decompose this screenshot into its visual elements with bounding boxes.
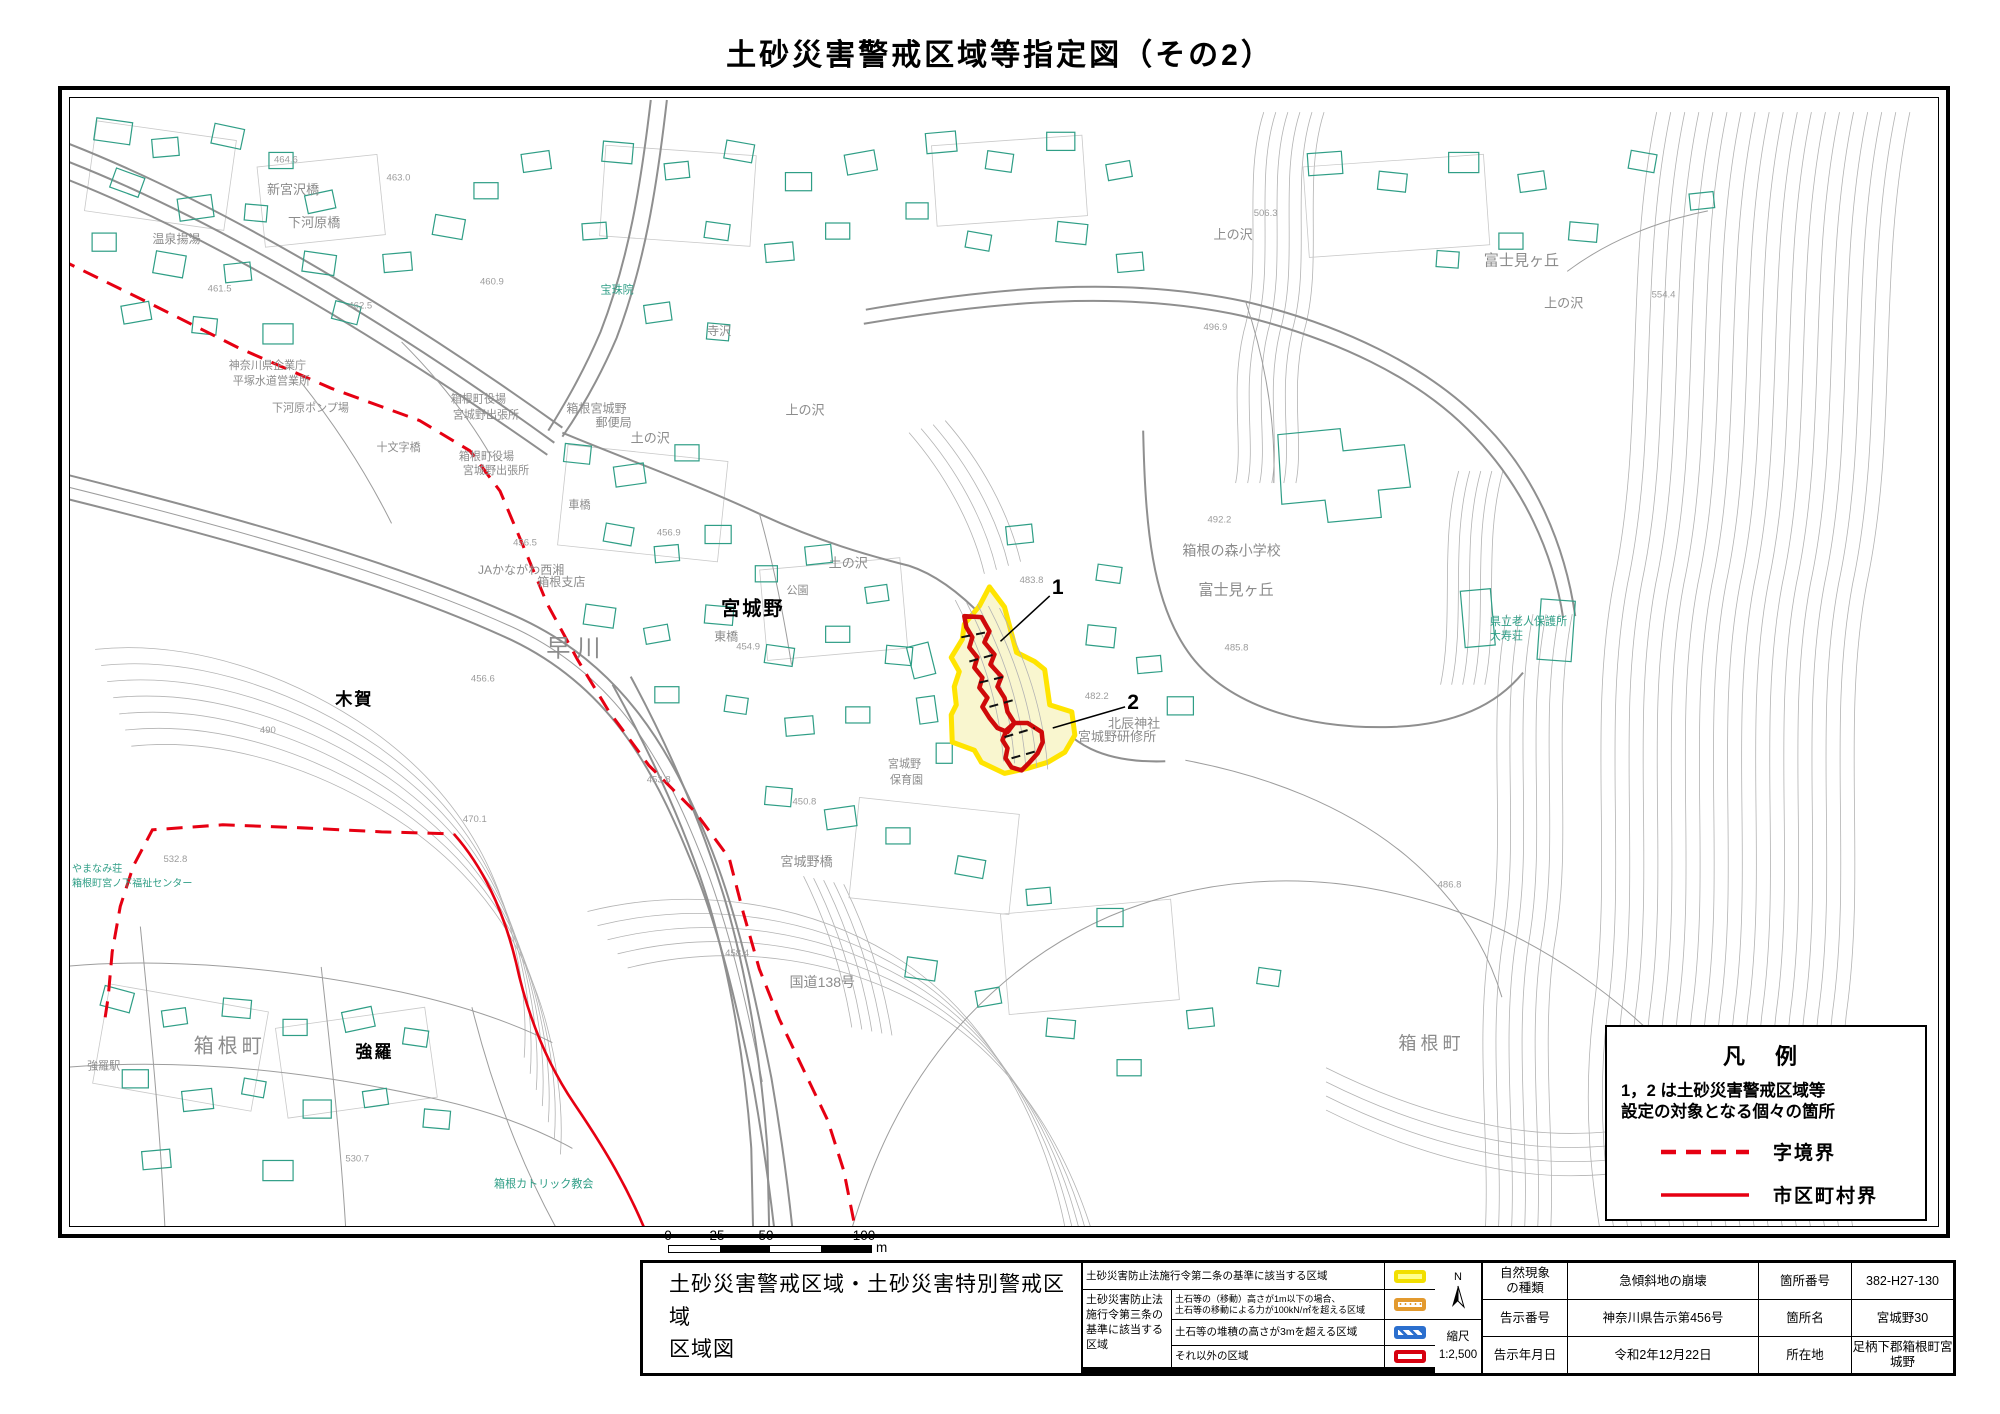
scale-cell: 縮尺 1:2,500 (1435, 1320, 1481, 1373)
yellow-zone-swatch (1394, 1270, 1426, 1283)
map-label: 公園 (786, 584, 808, 597)
map-label: 下河原橋 (288, 215, 340, 230)
orange-zone-swatch (1394, 1298, 1426, 1311)
elevation-label: 460.9 (480, 276, 504, 287)
scale-label: 縮尺 (1447, 1329, 1470, 1346)
scale-bar: 0 25 50 100 m (660, 1228, 900, 1260)
swatch-blue-cell (1385, 1320, 1435, 1345)
map-label: 箱根町役場 (451, 391, 506, 405)
compass-n-label: N (1454, 1271, 1462, 1283)
field-value: 神奈川県告示第456号 (1568, 1300, 1758, 1336)
field-label: 告示年月日 (1483, 1337, 1567, 1373)
map-label-route: 国道138号 (789, 974, 855, 990)
zone-label-1: 1 (1052, 576, 1064, 599)
map-label: 宮城野橋 (780, 854, 832, 869)
scale-tick-0: 0 (664, 1228, 672, 1243)
legend-row3-text: 土石等の堆積の高さが3mを超える区域 (1172, 1320, 1384, 1345)
legend-box: 凡 例 1，2 は土砂災害警戒区域等 設定の対象となる個々の箇所 字境界 市区町… (1605, 1025, 1927, 1221)
compass: N (1435, 1263, 1481, 1320)
elevation-label: 490 (260, 725, 276, 736)
map-label: 土の沢 (631, 431, 670, 446)
legend-dashed-label: 字境界 (1773, 1138, 1836, 1165)
legend-row2-text: 土石等の（移動）高さが1m以下の場合、 土石等の移動による力が100kN/㎡を超… (1172, 1290, 1384, 1319)
map-label: 郵便局 (596, 416, 632, 430)
map-label-river: 早川 (546, 635, 606, 662)
field-label: 自然現象の種類 (1483, 1263, 1567, 1299)
map-label: 箱根の森小学校 (1182, 543, 1280, 559)
legend-title: 凡 例 (1607, 1039, 1925, 1071)
swatch-yellow-cell (1385, 1263, 1435, 1289)
elevation-label: 483.8 (1020, 575, 1044, 586)
scale-tick-50: 50 (758, 1228, 773, 1243)
scale-bar-strip (668, 1245, 872, 1253)
map-label: 車橋 (568, 497, 590, 511)
dashed-line-sample (1659, 1146, 1751, 1158)
map-label: 神奈川県企業庁 (229, 358, 306, 372)
map-label: 宮城野出張所 (453, 408, 519, 422)
elevation-label: 532.8 (163, 854, 187, 865)
solid-line-sample (1659, 1189, 1751, 1201)
zone-label-2: 2 (1127, 691, 1139, 714)
legend-row4-text: それ以外の区域 (1172, 1346, 1384, 1367)
elevation-label: 461.5 (208, 284, 232, 295)
legend-desc-line2: 設定の対象となる個々の箇所 (1621, 1102, 1925, 1123)
field-value: 足柄下郡箱根町宮城野 (1852, 1337, 1953, 1373)
elevation-label: 456.9 (657, 527, 681, 538)
map-label: 上の沢 (1214, 227, 1253, 242)
map-label: 箱根町役場 (459, 449, 514, 463)
legend-row2-line2: 土石等の移動による力が100kN/㎡を超える区域 (1175, 1305, 1365, 1315)
map-label: 箱根支店 (537, 574, 585, 589)
field-value: 急傾斜地の崩壊 (1568, 1263, 1758, 1299)
elevation-label: 530.7 (345, 1153, 369, 1164)
elevation-label: 453.8 (647, 774, 671, 785)
notice-info-table: 自然現象の種類 急傾斜地の崩壊 箇所番号 382-H27-130 告示番号 神奈… (1483, 1263, 1953, 1373)
elevation-label: 470.1 (463, 814, 487, 825)
red-zone-swatch (1394, 1350, 1426, 1363)
field-label: 箇所名 (1759, 1300, 1851, 1336)
map-label: 平塚水道営業所 (233, 373, 310, 387)
elevation-label: 456.6 (471, 674, 495, 685)
elevation-label: 485.8 (1225, 642, 1249, 653)
elevation-label: 496.9 (1203, 322, 1227, 333)
field-label: 所在地 (1759, 1337, 1851, 1373)
map-label: 箱根カトリック教会 (494, 1177, 593, 1191)
legend-group-label: 土砂災害防止法施行令第三条の基準に該当する区域 (1083, 1290, 1171, 1367)
elevation-label: 554.4 (1652, 290, 1677, 301)
map-label: 県立老人保護所 (1490, 614, 1567, 628)
map-label: 新宮沢橋 (267, 182, 319, 197)
field-label: 箇所番号 (1759, 1263, 1851, 1299)
map-label: 大寿荘 (1490, 628, 1523, 642)
legend-desc-line1: 1，2 は土砂災害警戒区域等 (1621, 1081, 1925, 1102)
elevation-label: 482.2 (1085, 691, 1109, 702)
map-label-district: 強羅 (355, 1042, 393, 1062)
map-label: 箱根町 (1398, 1034, 1464, 1054)
elevation-label: 450.8 (792, 797, 816, 808)
map-label: 上の沢 (785, 403, 824, 418)
map-label: 保育園 (890, 772, 923, 786)
scale-value: 1:2,500 (1439, 1347, 1477, 1364)
elevation-label: 458.4 (725, 948, 750, 959)
swatch-orange-cell (1385, 1290, 1435, 1319)
page: 土砂災害警戒区域等指定図（その2） (0, 0, 2000, 1414)
map-label: 十文字橋 (376, 440, 420, 454)
elevation-label: 462.5 (348, 301, 372, 312)
elevation-label: 492.2 (1207, 514, 1231, 525)
legend-solid-label: 市区町村界 (1773, 1181, 1878, 1208)
map-label: 土の沢 (829, 556, 868, 571)
compass-scale-cell: N 縮尺 1:2,500 (1435, 1263, 1483, 1373)
blue-zone-swatch (1394, 1326, 1426, 1339)
elevation-label: 454.9 (736, 641, 760, 652)
north-arrow-icon (1449, 1283, 1467, 1311)
elevation-label: 456.5 (513, 538, 537, 549)
map-label: 温泉揚湯 (152, 231, 200, 246)
scale-tick-100: 100 (853, 1228, 876, 1243)
elevation-label: 486.8 (1438, 879, 1462, 890)
scale-unit: m (876, 1240, 887, 1255)
map-label: 箱根宮城野 (566, 400, 626, 415)
scale-tick-25: 25 (709, 1228, 724, 1243)
elevation-label: 506.3 (1254, 208, 1278, 219)
page-title: 土砂災害警戒区域等指定図（その2） (0, 30, 2000, 74)
map-label: 宝珠院 (601, 283, 634, 297)
map-sheet-title-line2: 区域図 (669, 1334, 1081, 1367)
legend-row1-text: 土砂災害防止法施行令第二条の基準に該当する区域 (1083, 1263, 1384, 1289)
map-label: 富士見ヶ丘 (1198, 581, 1273, 599)
map-label: 宮城野 (888, 756, 921, 770)
field-value: 令和2年12月22日 (1568, 1337, 1758, 1373)
map-sheet-title-line1: 土砂災害警戒区域・土砂災害特別警戒区域 (669, 1269, 1081, 1334)
swatch-red-cell (1385, 1346, 1435, 1367)
field-value: 382-H27-130 (1852, 1263, 1953, 1299)
map-label-district: 宮城野 (721, 597, 784, 620)
elevation-label: 463.0 (387, 173, 411, 184)
map-label: 箱根町 (194, 1035, 266, 1058)
map-label: 強羅駅 (87, 1060, 120, 1073)
footer-table: 土砂災害警戒区域・土砂災害特別警戒区域 区域図 土砂災害防止法施行令第二条の基準… (640, 1260, 1956, 1376)
field-value: 宮城野30 (1852, 1300, 1953, 1336)
map-label: 東橋 (714, 629, 738, 643)
zone-legend-table: 土砂災害防止法施行令第二条の基準に該当する区域 土砂災害防止法施行令第三条の基準… (1083, 1263, 1435, 1373)
map-label: 下河原ポンプ場 (272, 401, 349, 414)
map-label: 箱根町宮ノ下福祉センター (72, 876, 192, 889)
map-label-district: 木賀 (334, 689, 373, 709)
map-label: やまなみ荘 (72, 863, 122, 875)
field-label: 告示番号 (1483, 1300, 1567, 1336)
map-label: 宮城野出張所 (463, 463, 529, 477)
map-label: 宮城野研修所 (1078, 729, 1156, 744)
map-label: 上の沢 (1544, 296, 1583, 311)
map-label: 富士見ヶ丘 (1484, 251, 1559, 269)
map-label: 寺沢 (707, 324, 731, 338)
legend-row2-line1: 土石等の（移動）高さが1m以下の場合、 (1175, 1294, 1341, 1304)
elevation-label: 464.6 (274, 155, 298, 166)
map-sheet-title: 土砂災害警戒区域・土砂災害特別警戒区域 区域図 (643, 1263, 1083, 1373)
